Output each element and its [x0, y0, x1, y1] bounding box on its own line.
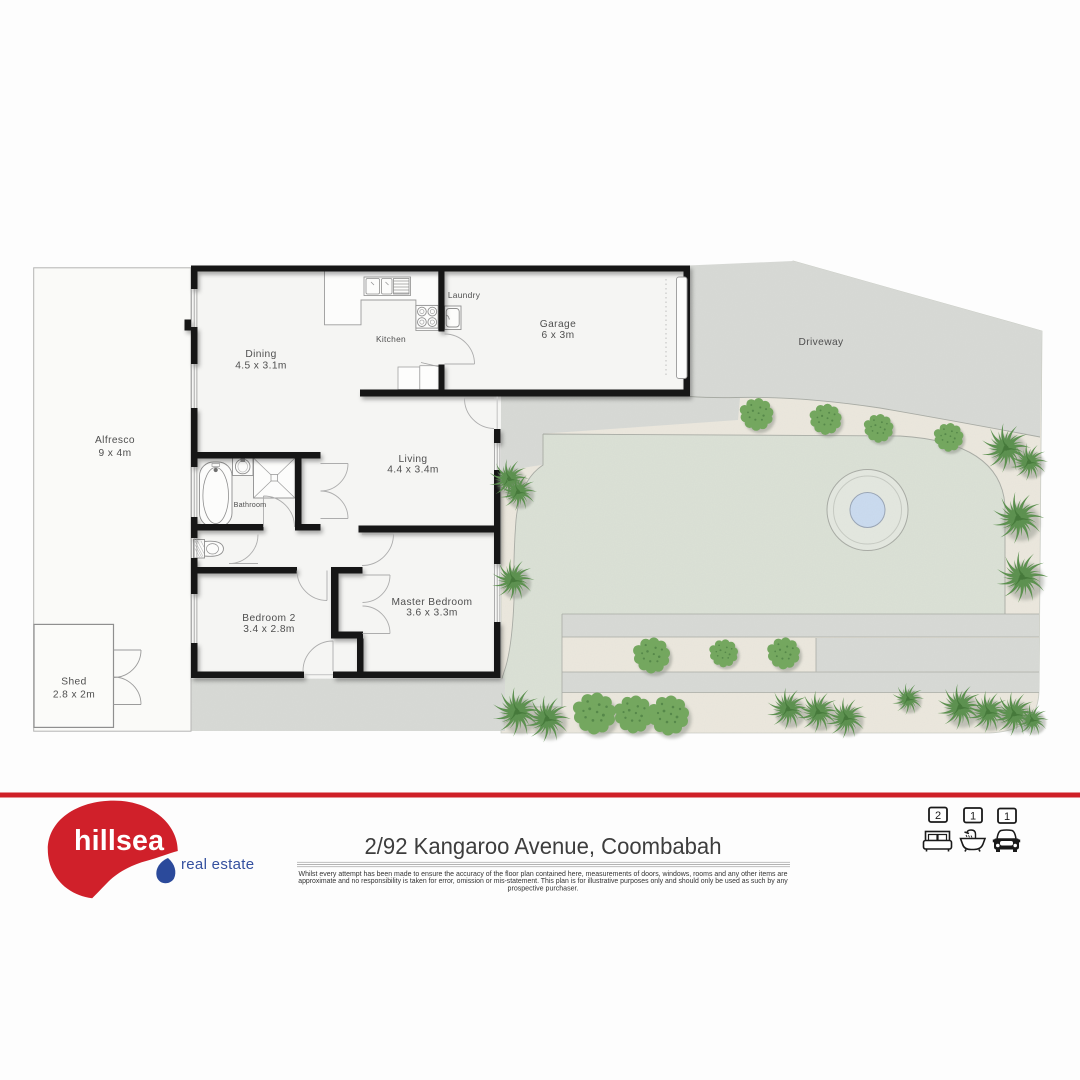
svg-text:Dining: Dining — [245, 349, 276, 360]
svg-text:2/92 Kangaroo Avenue, Coombaba: 2/92 Kangaroo Avenue, Coombabah — [365, 833, 722, 859]
svg-text:4.5 x 3.1m: 4.5 x 3.1m — [235, 361, 287, 372]
svg-text:3.4 x 2.8m: 3.4 x 2.8m — [243, 624, 295, 635]
svg-text:hillsea: hillsea — [74, 825, 165, 857]
svg-text:Whilst every attempt has been: Whilst every attempt has been made to en… — [299, 871, 788, 878]
svg-text:6 x 3m: 6 x 3m — [542, 330, 575, 341]
svg-text:3.6 x 3.3m: 3.6 x 3.3m — [406, 608, 458, 619]
svg-text:1: 1 — [1004, 811, 1010, 823]
svg-text:Living: Living — [398, 454, 427, 465]
svg-text:9 x 4m: 9 x 4m — [99, 448, 132, 459]
svg-text:2: 2 — [935, 810, 941, 822]
svg-text:2.8 x 2m: 2.8 x 2m — [53, 690, 95, 701]
svg-text:Driveway: Driveway — [798, 337, 844, 348]
svg-text:Garage: Garage — [540, 319, 576, 330]
svg-text:Laundry: Laundry — [448, 290, 481, 300]
svg-text:Master Bedroom: Master Bedroom — [392, 597, 473, 608]
svg-text:1: 1 — [970, 811, 976, 823]
svg-text:Bedroom 2: Bedroom 2 — [242, 613, 295, 624]
svg-text:4.4 x 3.4m: 4.4 x 3.4m — [387, 465, 439, 476]
svg-text:Kitchen: Kitchen — [376, 334, 406, 344]
svg-text:approximate and no responsibil: approximate and no responsibility is tak… — [298, 878, 788, 885]
svg-text:Shed: Shed — [61, 677, 86, 688]
svg-text:real estate: real estate — [181, 856, 254, 873]
svg-text:Alfresco: Alfresco — [95, 435, 135, 446]
svg-text:prospective purchaser.: prospective purchaser. — [508, 885, 579, 892]
svg-text:Bathroom: Bathroom — [234, 500, 267, 509]
